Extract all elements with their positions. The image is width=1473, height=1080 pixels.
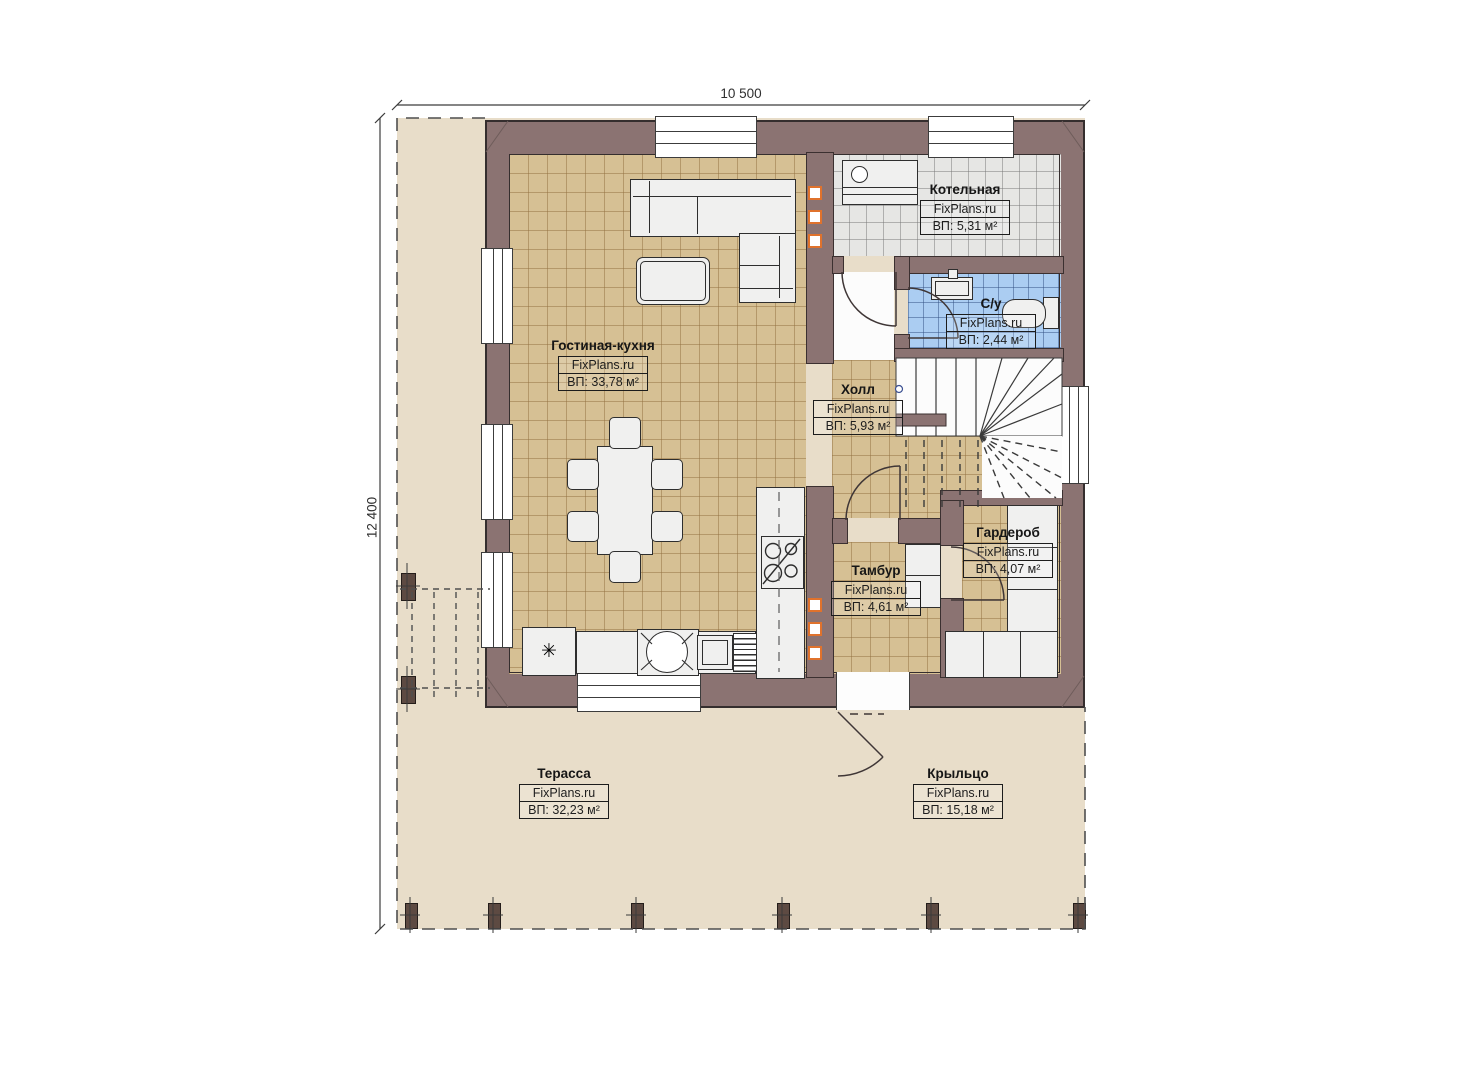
window-right-stairs [1057, 386, 1089, 484]
room-info-box: FixPlans.ru ВП: 5,93 м² [813, 400, 903, 435]
room-name: Холл [841, 382, 875, 397]
terrace-column [926, 903, 939, 929]
window-top-boiler [928, 116, 1014, 158]
dining-chair-top [609, 417, 641, 449]
wall-bathroom-stairs [894, 348, 1064, 362]
shelf-line [1008, 589, 1057, 590]
room-name: Крыльцо [927, 766, 988, 781]
room-area: ВП: 15,18 м² [914, 802, 1002, 818]
floor-plan: ✳ [0, 0, 1473, 1080]
room-area: ВП: 2,44 м² [947, 332, 1035, 348]
dining-chair-bottom [609, 551, 641, 583]
room-info-box: FixPlans.ru ВП: 15,18 м² [913, 784, 1003, 819]
terrace-column [777, 903, 790, 929]
room-label-wardrobe: Гардероб FixPlans.ru ВП: 4,07 м² [962, 525, 1054, 578]
wall-boiler-bathroom [896, 256, 1064, 274]
room-name: Тамбур [852, 563, 901, 578]
kitchen-sink-unit [637, 629, 699, 676]
wall-vestibule-wardrobe-top [940, 500, 964, 546]
room-info-box: FixPlans.ru ВП: 2,44 м² [946, 314, 1036, 349]
sofa-main [630, 179, 796, 237]
room-label-porch: Крыльцо FixPlans.ru ВП: 15,18 м² [911, 766, 1005, 819]
dining-chair-right-1 [651, 459, 683, 490]
window-bottom-kitchen [577, 670, 701, 712]
wardrobe-shelves-bottom [945, 631, 1058, 678]
window-left-3 [481, 552, 513, 648]
wall-bathroom-top-jamb [894, 256, 910, 290]
room-area: ВП: 4,07 м² [964, 561, 1052, 577]
room-label-bathroom: С/у FixPlans.ru ВП: 2,44 м² [946, 296, 1036, 349]
wall-hall-vestibule-left [832, 518, 848, 544]
dining-chair-left-1 [567, 459, 599, 490]
sofa-chaise-cushion-line [740, 265, 780, 266]
window-top-living [655, 116, 757, 158]
dimension-height: 12 400 [365, 468, 380, 568]
coffee-table [636, 257, 710, 305]
room-area: ВП: 5,31 м² [921, 218, 1009, 234]
room-label-vestibule: Тамбур FixPlans.ru ВП: 4,61 м² [830, 563, 922, 616]
room-info-box: FixPlans.ru ВП: 32,23 м² [519, 784, 609, 819]
dining-chair-left-2 [567, 511, 599, 542]
terrace-column [1073, 903, 1086, 929]
brand-text: FixPlans.ru [947, 315, 1035, 332]
sofa-back-line [633, 196, 791, 197]
room-name: Гардероб [976, 525, 1040, 540]
room-area: ВП: 32,23 м² [520, 802, 608, 818]
terrace-column [405, 903, 418, 929]
room-label-terrace: Терасса FixPlans.ru ВП: 32,23 м² [517, 766, 611, 819]
bathroom-tap [948, 269, 958, 279]
window-left-2 [481, 424, 513, 520]
sofa-chaise-armrest-line [740, 288, 793, 289]
room-name: С/у [980, 296, 1001, 311]
brand-text: FixPlans.ru [814, 401, 902, 418]
wall-living-boiler [806, 152, 834, 364]
room-label-living: Гостиная-кухня FixPlans.ru ВП: 33,78 м² [555, 338, 651, 391]
bathroom-sink-inner [935, 281, 969, 296]
room-label-hall: Холл FixPlans.ru ВП: 5,93 м² [812, 382, 904, 435]
boiler-line-2 [843, 194, 917, 195]
vent-marker [808, 234, 822, 248]
brand-text: FixPlans.ru [520, 785, 608, 802]
room-info-box: FixPlans.ru ВП: 33,78 м² [558, 356, 648, 391]
sink-bowl [646, 631, 688, 673]
fridge: ✳ [522, 627, 576, 676]
room-info-box: FixPlans.ru ВП: 4,61 м² [831, 581, 921, 616]
room-name: Терасса [537, 766, 591, 781]
shelf-line [1020, 632, 1021, 677]
sofa-cushion-line [697, 197, 698, 234]
boiler-gauge [851, 166, 868, 183]
boiler-unit [842, 160, 918, 205]
terrace-column [631, 903, 644, 929]
snowflake-icon: ✳ [541, 640, 557, 663]
room-label-boiler: Котельная FixPlans.ru ВП: 5,31 м² [920, 182, 1010, 235]
brand-text: FixPlans.ru [964, 544, 1052, 561]
room-info-box: FixPlans.ru ВП: 4,07 м² [963, 543, 1053, 578]
oven-inner [702, 640, 728, 665]
window-left-1 [481, 248, 513, 344]
brand-text: FixPlans.ru [921, 201, 1009, 218]
cooktop [761, 536, 804, 589]
terrace-column [488, 903, 501, 929]
wall-boiler-stub [832, 256, 844, 274]
vent-marker [808, 646, 822, 660]
boiler-line-1 [843, 187, 917, 188]
room-area: ВП: 33,78 м² [559, 374, 647, 390]
room-name: Гостиная-кухня [551, 338, 654, 353]
room-info-box: FixPlans.ru ВП: 5,31 м² [920, 200, 1010, 235]
oven [697, 635, 733, 670]
room-area: ВП: 5,93 м² [814, 418, 902, 434]
vent-marker [808, 186, 822, 200]
terrace-column [401, 573, 416, 601]
shelf-line [983, 632, 984, 677]
entrance-opening [836, 672, 910, 710]
terrace-column [401, 676, 416, 704]
dining-chair-right-2 [651, 511, 683, 542]
room-name: Котельная [930, 182, 1001, 197]
dining-table [597, 446, 653, 555]
sofa-armrest-line [649, 181, 650, 233]
brand-text: FixPlans.ru [559, 357, 647, 374]
brand-text: FixPlans.ru [914, 785, 1002, 802]
brand-text: FixPlans.ru [832, 582, 920, 599]
vent-marker [808, 622, 822, 636]
vent-marker [808, 598, 822, 612]
sofa-chaise [739, 233, 796, 303]
room-area: ВП: 4,61 м² [832, 599, 920, 615]
vent-marker [808, 210, 822, 224]
dimension-width: 10 500 [397, 86, 1085, 101]
